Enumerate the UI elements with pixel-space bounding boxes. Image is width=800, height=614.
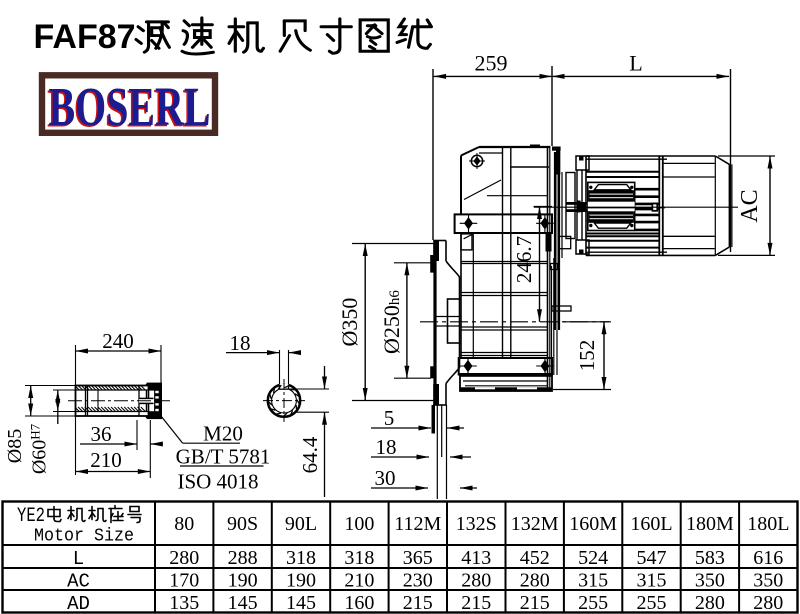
svg-text:215: 215	[403, 592, 433, 614]
svg-text:135: 135	[169, 592, 199, 614]
svg-text:180M: 180M	[686, 513, 734, 535]
svg-text:160M: 160M	[569, 513, 617, 535]
svg-text:Ø250h6: Ø250h6	[379, 290, 404, 354]
svg-text:170: 170	[169, 570, 199, 592]
svg-text:280: 280	[169, 547, 199, 569]
svg-text:190: 190	[228, 570, 258, 592]
svg-text:M20: M20	[203, 422, 243, 446]
svg-text:215: 215	[461, 592, 491, 614]
svg-text:230: 230	[403, 570, 433, 592]
svg-text:280: 280	[695, 592, 725, 614]
svg-text:18: 18	[376, 435, 397, 459]
svg-text:132M: 132M	[511, 513, 559, 535]
svg-text:FAF87: FAF87	[34, 18, 136, 56]
svg-text:90S: 90S	[227, 513, 258, 535]
svg-text:Ø85: Ø85	[4, 429, 26, 463]
svg-text:AC: AC	[737, 189, 763, 222]
svg-text:255: 255	[637, 592, 667, 614]
svg-text:318: 318	[286, 547, 316, 569]
svg-text:350: 350	[695, 570, 725, 592]
svg-text:215: 215	[520, 592, 550, 614]
svg-text:YE2: YE2	[17, 505, 45, 528]
svg-text:350: 350	[753, 570, 783, 592]
svg-text:583: 583	[695, 547, 725, 569]
svg-text:280: 280	[753, 592, 783, 614]
svg-text:145: 145	[286, 592, 316, 614]
svg-text:160L: 160L	[630, 513, 672, 535]
svg-text:AC: AC	[67, 571, 90, 593]
svg-text:413: 413	[461, 547, 491, 569]
svg-text:246.7: 246.7	[512, 236, 536, 283]
svg-text:280: 280	[461, 570, 491, 592]
svg-text:BOSERL: BOSERL	[49, 76, 211, 137]
svg-text:36: 36	[91, 422, 112, 446]
svg-text:ISO 4018: ISO 4018	[177, 470, 258, 494]
svg-text:145: 145	[228, 592, 258, 614]
svg-text:112M: 112M	[394, 513, 441, 535]
svg-text:365: 365	[403, 547, 433, 569]
svg-text:5: 5	[384, 406, 395, 430]
svg-text:315: 315	[637, 570, 667, 592]
svg-text:259: 259	[475, 51, 508, 76]
svg-text:L: L	[73, 548, 84, 570]
svg-text:616: 616	[753, 547, 783, 569]
svg-text:524: 524	[578, 547, 608, 569]
svg-text:L: L	[629, 51, 642, 76]
svg-text:280: 280	[520, 570, 550, 592]
svg-text:132S: 132S	[456, 513, 497, 535]
svg-text:160: 160	[344, 592, 374, 614]
svg-text:AD: AD	[67, 593, 90, 614]
svg-text:90L: 90L	[285, 513, 317, 535]
svg-text:315: 315	[578, 570, 608, 592]
svg-text:240: 240	[102, 329, 134, 353]
svg-text:318: 318	[344, 547, 374, 569]
svg-text:452: 452	[520, 547, 550, 569]
svg-text:180L: 180L	[747, 513, 789, 535]
svg-text:64.4: 64.4	[298, 436, 322, 473]
svg-text:547: 547	[637, 547, 667, 569]
svg-text:GB/T 5781: GB/T 5781	[176, 445, 271, 469]
svg-text:Motor Size: Motor Size	[34, 527, 134, 547]
svg-text:Ø60H7: Ø60H7	[28, 423, 51, 474]
svg-text:152: 152	[575, 340, 599, 372]
svg-text:190: 190	[286, 570, 316, 592]
svg-text:210: 210	[90, 448, 122, 472]
svg-text:30: 30	[375, 466, 396, 490]
svg-text:210: 210	[344, 570, 374, 592]
svg-text:288: 288	[228, 547, 258, 569]
svg-text:Ø350: Ø350	[337, 298, 362, 347]
svg-text:18: 18	[230, 331, 251, 355]
svg-text:255: 255	[578, 592, 608, 614]
svg-text:100: 100	[344, 513, 374, 535]
svg-text:80: 80	[174, 513, 194, 535]
